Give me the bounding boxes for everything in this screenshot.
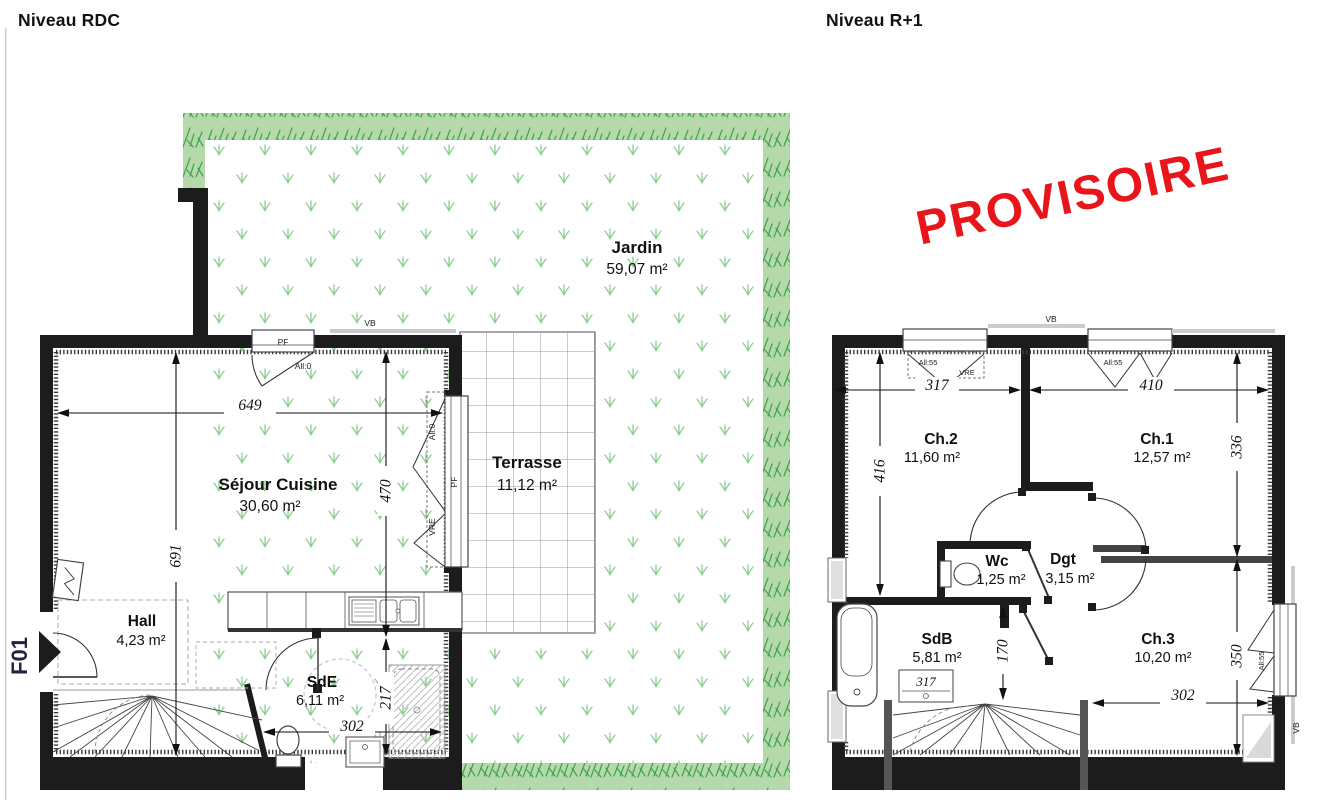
room-area-hall: 4,23 m² — [116, 633, 165, 649]
dim-r1-336: 336 — [1229, 435, 1246, 460]
r1-sill-top-left — [988, 324, 1085, 328]
room-label-sdb: SdB — [922, 631, 953, 648]
r1-corner-cabinet — [1243, 715, 1274, 762]
dim-r1-410: 410 — [1139, 377, 1163, 394]
r1-sill-top-right — [1172, 329, 1275, 333]
r1-vb-right-label: VB — [1291, 722, 1301, 734]
room-label-wc: Wc — [985, 553, 1009, 570]
room-area-ch1: 12,57 m² — [1133, 450, 1190, 466]
room-label-terrasse: Terrasse — [492, 453, 562, 472]
r1-sdb-door — [1019, 605, 1053, 665]
rdc-entrance-door — [39, 631, 97, 677]
dim-rdc-649: 649 — [238, 397, 262, 414]
page-edge-line — [5, 28, 7, 800]
dim-r1-350: 350 — [1229, 644, 1246, 669]
room-area-sde: 6,11 m² — [296, 693, 344, 709]
room-label-dgt: Dgt — [1050, 551, 1076, 568]
r1-sliding-door — [1093, 545, 1272, 563]
room-label-sde: SdE — [307, 674, 337, 691]
rdc-electrical-panel — [52, 559, 83, 600]
dim-rdc-691: 691 — [168, 544, 185, 567]
room-area-dgt: 3,15 m² — [1045, 571, 1094, 587]
room-label-hall: Hall — [128, 613, 156, 630]
room-area-sdb: 5,81 m² — [912, 650, 961, 666]
rdc-vb-top-label: VB — [364, 318, 376, 328]
room-area-sejour: 30,60 m² — [239, 498, 300, 515]
rdc-pf-top-label: PF — [278, 337, 289, 347]
r1-all55-ch1-label: All:55 — [1104, 358, 1123, 367]
room-area-ch3: 10,20 m² — [1134, 650, 1191, 666]
dim-rdc-217: 217 — [378, 685, 395, 710]
rdc-all0-right-label: All:0 — [427, 423, 437, 440]
dim-r1-317: 317 — [924, 377, 950, 394]
r1-all55-right-label: All:55 — [1257, 652, 1266, 671]
rdc-pf-right-label: PF — [449, 477, 459, 488]
dim-r1-416: 416 — [872, 459, 889, 483]
room-area-terrasse: 11,12 m² — [497, 477, 557, 494]
rdc-vanity-sink — [346, 737, 384, 767]
room-label-sejour: Séjour Cuisine — [218, 475, 337, 494]
r1-all55-ch2-label: All:55 — [919, 358, 938, 367]
room-label-jardin: Jardin — [611, 238, 662, 257]
r1-bathtub — [837, 604, 877, 706]
dim-r1-sink-317: 317 — [915, 674, 936, 689]
dim-rdc-302: 302 — [339, 718, 364, 735]
dim-r1-170: 170 — [995, 639, 1012, 663]
dim-rdc-470: 470 — [378, 479, 395, 503]
room-label-ch1: Ch.1 — [1140, 431, 1174, 448]
r1-vb-top-label: VB — [1045, 314, 1057, 324]
room-area-jardin: 59,07 m² — [606, 261, 667, 278]
room-area-ch2: 11,60 m² — [904, 450, 960, 466]
rdc-kitchen-counter — [228, 592, 462, 632]
room-label-ch3: Ch.3 — [1141, 631, 1175, 648]
floorplan-page: Niveau RDC Niveau R+1 PROVISOIRE F01 — [0, 0, 1323, 800]
rdc-shower — [389, 665, 445, 758]
room-label-ch2: Ch.2 — [924, 431, 958, 448]
room-area-wc: 1,25 m² — [976, 572, 1025, 588]
dim-r1-302: 302 — [1170, 687, 1195, 704]
rdc-vre-right-label: VRE — [427, 518, 437, 536]
r1-vre-ch2-label: VRE — [959, 368, 974, 377]
rdc-all0-top-label: All:0 — [295, 361, 312, 371]
floorplan-drawing: PF All:0 VB All:0 PF VRE — [0, 0, 1323, 800]
